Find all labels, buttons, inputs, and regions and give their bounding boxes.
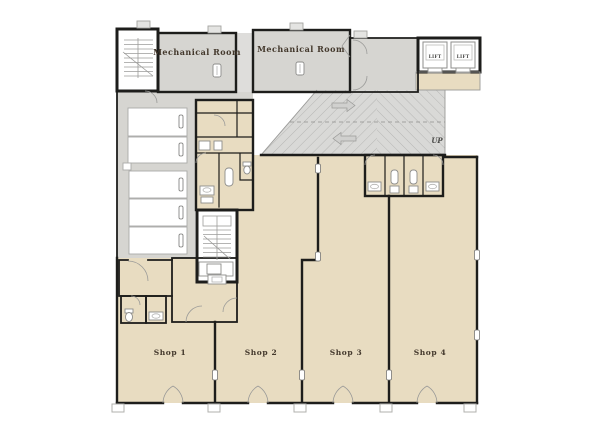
- column-footing: [112, 404, 124, 412]
- shop-4-label: Shop 4: [414, 348, 447, 357]
- washroom-sink-icon: [200, 186, 214, 195]
- column-footing: [208, 404, 220, 412]
- mechanical-room-2-floor: [253, 30, 350, 92]
- column-marker: [316, 252, 321, 261]
- floor-plan-canvas: LIFT LIFT: [0, 0, 600, 424]
- washroom-shelf-box-icon: [214, 141, 222, 150]
- stall-3-tick: [179, 178, 183, 191]
- column-marker: [475, 330, 480, 340]
- back-room-floor: [119, 260, 172, 296]
- column-marker: [213, 370, 218, 380]
- vent-tab: [354, 31, 367, 38]
- mechanical-room-1-floor: [158, 33, 236, 92]
- washroom-step-icon: [201, 197, 213, 203]
- stall-5-tick: [179, 234, 183, 247]
- stall-divider-stub: [123, 163, 131, 170]
- washroom-wc-tank-icon: [243, 162, 251, 166]
- service-corridor-right: [350, 38, 418, 92]
- lift-right-label: LIFT: [457, 54, 470, 60]
- mech-room-1-label: Mechanical Room: [153, 47, 241, 57]
- column-marker: [387, 370, 392, 380]
- column-footing: [380, 404, 392, 412]
- mech-room-2-label: Mechanical Room: [257, 44, 345, 54]
- shop1-toilet-icon: [126, 313, 133, 322]
- lift-left-label: LIFT: [429, 54, 442, 60]
- shop-3-label: Shop 3: [330, 348, 363, 357]
- vent-tab: [208, 26, 221, 33]
- column-marker: [316, 164, 321, 173]
- storage-stalls: [123, 108, 187, 254]
- stall-4: [129, 199, 187, 226]
- stall-1-tick: [179, 115, 183, 128]
- ramp-up-label: UP: [431, 136, 443, 145]
- stall-3: [129, 171, 187, 198]
- ramp-hatch-right: [377, 90, 445, 155]
- stair-bottom-door-icon: [208, 275, 226, 284]
- rt-sink-2-icon: [426, 182, 439, 191]
- stall-5: [129, 227, 187, 254]
- ramp: [261, 90, 445, 155]
- washroom-urinal-icon: [225, 168, 233, 186]
- rt-urinal-2-icon: [410, 170, 417, 184]
- between-rooms-strip: [236, 33, 253, 92]
- vent-tab: [290, 23, 303, 30]
- rt-sink-1-icon: [368, 182, 381, 191]
- shop-1-label: Shop 1: [154, 348, 187, 357]
- lift-lobby-floor: [416, 72, 480, 90]
- floor-plan-page: LIFT LIFT: [0, 0, 600, 424]
- ramp-hatch-left: [261, 90, 377, 155]
- vent-tab: [137, 21, 150, 28]
- washroom-wc-icon: [244, 166, 250, 174]
- column-marker: [300, 370, 305, 380]
- stall-1: [128, 108, 187, 136]
- shop1-sink-icon: [149, 312, 163, 320]
- rt-urinal-1-icon: [391, 170, 398, 184]
- washroom-shelf-sink-icon: [199, 141, 210, 150]
- counter-appliance-icon: [207, 264, 221, 274]
- rt-wc-1-icon: [390, 186, 399, 193]
- column-marker: [475, 250, 480, 260]
- column-footing: [294, 404, 306, 412]
- shop-2-label: Shop 2: [245, 348, 278, 357]
- stairwell-top-floor: [117, 29, 158, 91]
- stall-2: [128, 137, 187, 163]
- rt-wc-2-icon: [409, 186, 418, 193]
- stall-4-tick: [179, 206, 183, 219]
- stall-2-tick: [179, 143, 183, 156]
- column-footing: [464, 404, 476, 412]
